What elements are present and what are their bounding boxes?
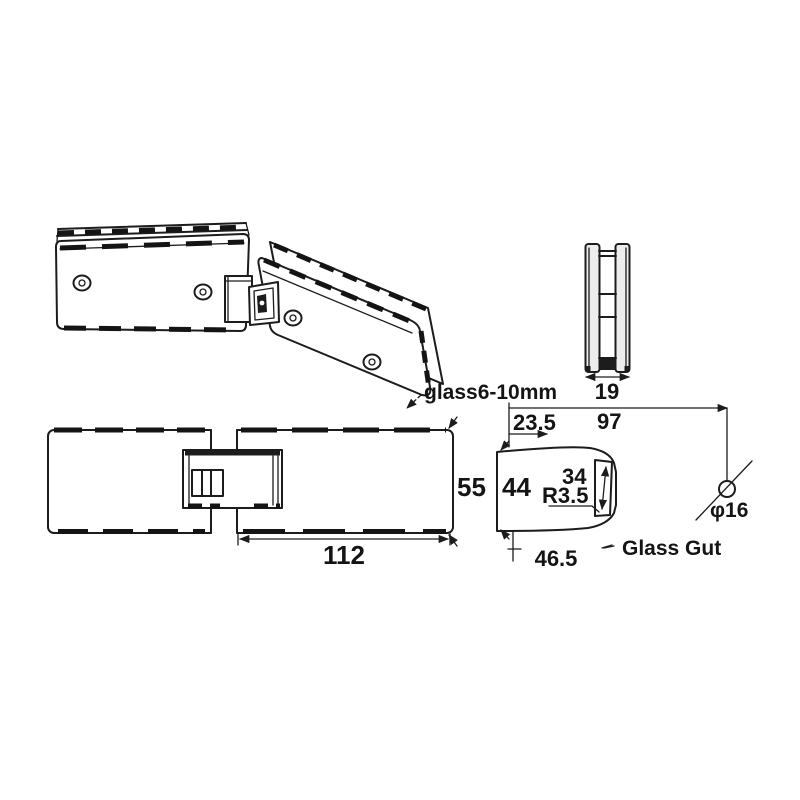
technical-drawing: glass6-10mm 19 — [0, 0, 800, 800]
front-view — [48, 417, 457, 546]
label-glass-thickness: glass6-10mm — [424, 381, 557, 404]
hinge-block — [225, 276, 252, 322]
dim-arrow-55-top — [449, 417, 457, 428]
dim-23-5: 23.5 — [513, 410, 556, 435]
end-view-left-plate — [586, 244, 600, 372]
label-glass-cut: Glass Gut — [622, 537, 721, 560]
dim-arrow-44-top — [501, 441, 509, 450]
perspective-view — [56, 223, 443, 408]
dim-r3-5: R3.5 — [542, 483, 588, 508]
screw-cap — [74, 276, 91, 291]
dim-55: 55 — [457, 472, 486, 502]
dim-phi16: φ16 — [710, 499, 748, 522]
dim-19: 19 — [595, 379, 619, 404]
hole-circle — [719, 481, 735, 497]
glass-leader-line — [407, 395, 421, 408]
dim-112: 112 — [323, 540, 365, 570]
screw-cap — [285, 311, 302, 326]
end-view-right-plate — [616, 244, 630, 372]
front-view-mechanism — [183, 450, 282, 508]
dim-97: 97 — [597, 409, 621, 434]
end-view — [586, 244, 630, 377]
dim-44: 44 — [502, 472, 531, 502]
drawing-canvas: glass6-10mm 19 — [0, 0, 800, 800]
screw-cap — [195, 285, 212, 300]
dim-46-5: 46.5 — [535, 546, 578, 571]
screw-cap — [364, 355, 381, 370]
hinge-knuckle — [249, 282, 279, 325]
